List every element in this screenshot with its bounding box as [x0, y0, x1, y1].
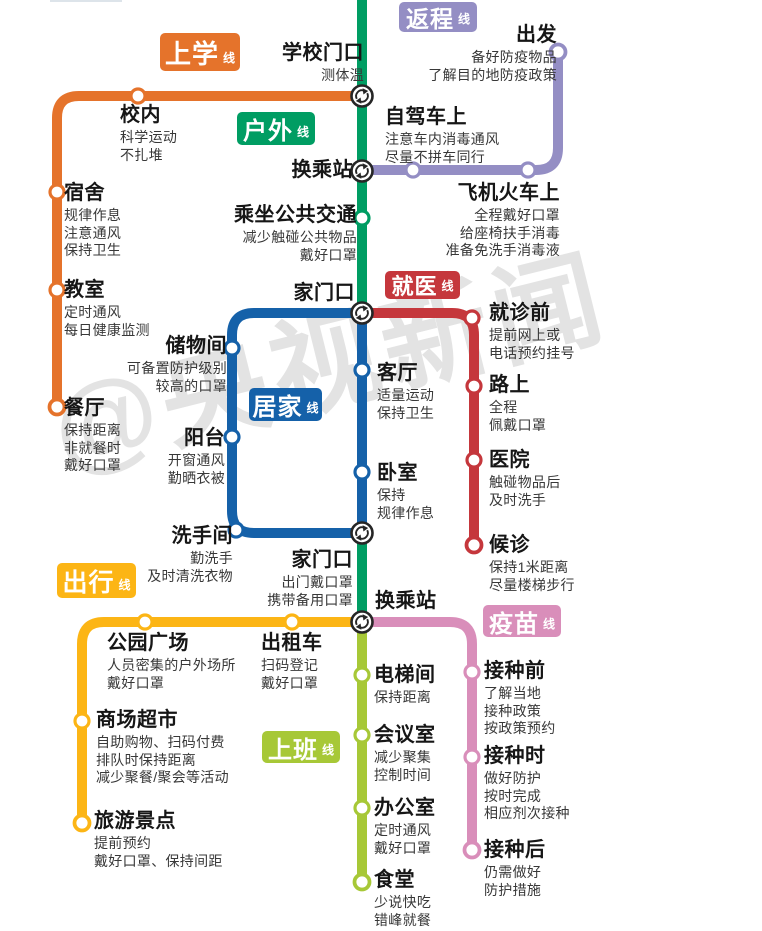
terminus-dot — [465, 843, 480, 858]
terminus-dot — [355, 875, 370, 890]
home-line-path — [232, 313, 362, 533]
station-dot — [521, 163, 535, 177]
line-badge-travel: 出行线 — [57, 563, 136, 598]
station-meeting-room: 会议室 减少聚集 控制时间 — [374, 724, 436, 784]
station-plane-train: 飞机火车上 全程戴好口罩 给座椅扶手消毒 准备免洗手消毒液 — [446, 182, 560, 259]
badge-label: 居家 — [252, 387, 302, 422]
home-line — [225, 313, 369, 537]
station-taxi: 出租车 扫码登记 戴好口罩 — [261, 632, 323, 692]
station-washroom: 洗手间 勤洗手 及时清洗衣物 — [147, 525, 233, 585]
station-dormitory: 宿舍 规律作息 注意通风 保持卫生 — [64, 182, 121, 259]
station-dot — [465, 665, 479, 679]
station-during-vaccine: 接种时 做好防护 按时完成 相应剂次接种 — [484, 745, 570, 822]
station-departure: 出发 备好防疫物品 了解目的地防疫政策 — [428, 24, 557, 84]
station-dot — [50, 283, 64, 297]
station-mall-supermarket: 商场超市 自助购物、扫码付费 排队时保持距离 减少聚餐/聚会等活动 — [96, 709, 229, 786]
line-badge-work: 上班线 — [262, 731, 340, 763]
station-dot — [355, 465, 369, 479]
station-dot — [131, 89, 145, 103]
station-dot — [465, 750, 479, 764]
station-post-vaccine: 接种后 仍需做好 防护措施 — [484, 839, 546, 899]
station-storage-room: 储物间 可备置防护级别 较高的口罩 — [127, 335, 227, 395]
terminus-dot — [75, 816, 90, 831]
station-dot — [225, 341, 239, 355]
station-office: 办公室 定时通风 戴好口罩 — [374, 797, 436, 857]
badge-suffix: 线 — [306, 399, 318, 416]
badge-label: 上班 — [268, 730, 318, 765]
work-line — [355, 622, 370, 890]
station-home-door-bottom: 家门口 出门戴口罩 携带备用口罩 — [267, 549, 353, 609]
badge-label: 出行 — [62, 563, 114, 599]
station-dot — [285, 615, 299, 629]
station-dot — [355, 668, 369, 682]
station-dot — [50, 185, 64, 199]
station-transfer-1: 换乘站 — [292, 159, 354, 184]
station-tourist-spot: 旅游景点 提前预约 戴好口罩、保持间距 — [94, 810, 223, 870]
station-bedroom: 卧室 保持 规律作息 — [377, 462, 434, 522]
station-cafeteria: 食堂 少说快吃 错峰就餐 — [374, 869, 431, 929]
badge-suffix: 线 — [119, 576, 131, 593]
station-classroom: 教室 定时通风 每日健康监测 — [64, 279, 150, 339]
badge-label: 疫苗 — [489, 604, 539, 639]
station-public-transport: 乘坐公共交通 减少触碰公共物品 戴好口罩 — [234, 204, 357, 264]
badge-label: 户外 — [243, 111, 293, 146]
badge-suffix: 线 — [442, 277, 454, 294]
transfer-station-icon — [352, 86, 373, 107]
station-canteen: 餐厅 保持距离 非就餐时 戴好口罩 — [64, 397, 121, 474]
station-dot — [355, 211, 369, 225]
station-pre-vaccine: 接种前 了解当地 接种政策 按政策预约 — [484, 660, 556, 737]
badge-suffix: 线 — [223, 49, 235, 66]
line-badge-medical: 就医线 — [385, 271, 460, 299]
station-dot — [225, 430, 239, 444]
station-dot — [75, 714, 89, 728]
line-badge-vaccine: 疫苗线 — [483, 605, 561, 637]
transfer-station-icon — [352, 523, 373, 544]
station-balcony: 阳台 开窗通风 勤晒衣被 — [168, 427, 225, 487]
station-dot — [355, 363, 369, 377]
station-park-square: 公园广场 人员密集的户外场所 戴好口罩 — [107, 632, 236, 692]
station-dot — [467, 453, 481, 467]
badge-label: 就医 — [391, 269, 437, 301]
badge-label: 上学 — [165, 34, 219, 71]
badge-suffix: 线 — [322, 741, 334, 758]
transfer-station-icon — [352, 161, 373, 182]
station-private-car: 自驾车上 注意车内消毒通风 尽量不拼车同行 — [385, 106, 499, 166]
terminus-dot — [467, 538, 482, 553]
line-badge-school: 上学线 — [160, 33, 240, 71]
badge-suffix: 线 — [543, 615, 555, 632]
line-badge-outdoor: 户外线 — [237, 112, 315, 145]
line-badge-home: 居家线 — [249, 388, 322, 421]
station-home-door-top: 家门口 — [294, 282, 356, 307]
station-on-the-way: 路上 全程 佩戴口罩 — [489, 374, 546, 434]
station-dot — [355, 728, 369, 742]
station-dot — [467, 379, 481, 393]
station-pre-visit: 就诊前 提前网上或 电话预约挂号 — [489, 302, 575, 362]
station-school-gate: 学校门口 测体温 — [282, 42, 364, 85]
station-transfer-2: 换乘站 — [375, 590, 437, 615]
station-hospital: 医院 触碰物品后 及时洗手 — [489, 449, 561, 509]
station-dot — [465, 311, 479, 325]
station-waiting-room: 候诊 保持1米距离 尽量楼梯步行 — [489, 534, 575, 594]
station-dot — [138, 615, 152, 629]
badge-suffix: 线 — [297, 123, 309, 140]
transfer-station-icon — [352, 612, 373, 633]
station-dot — [355, 801, 369, 815]
terminus-dot — [50, 400, 65, 415]
epidemic-prevention-metro-map: @央视新闻 — [0, 0, 762, 931]
station-elevator: 电梯间 保持距离 — [374, 664, 436, 707]
station-living-room: 客厅 适量运动 保持卫生 — [377, 362, 434, 422]
station-on-campus: 校内 科学运动 不扎堆 — [120, 104, 177, 164]
